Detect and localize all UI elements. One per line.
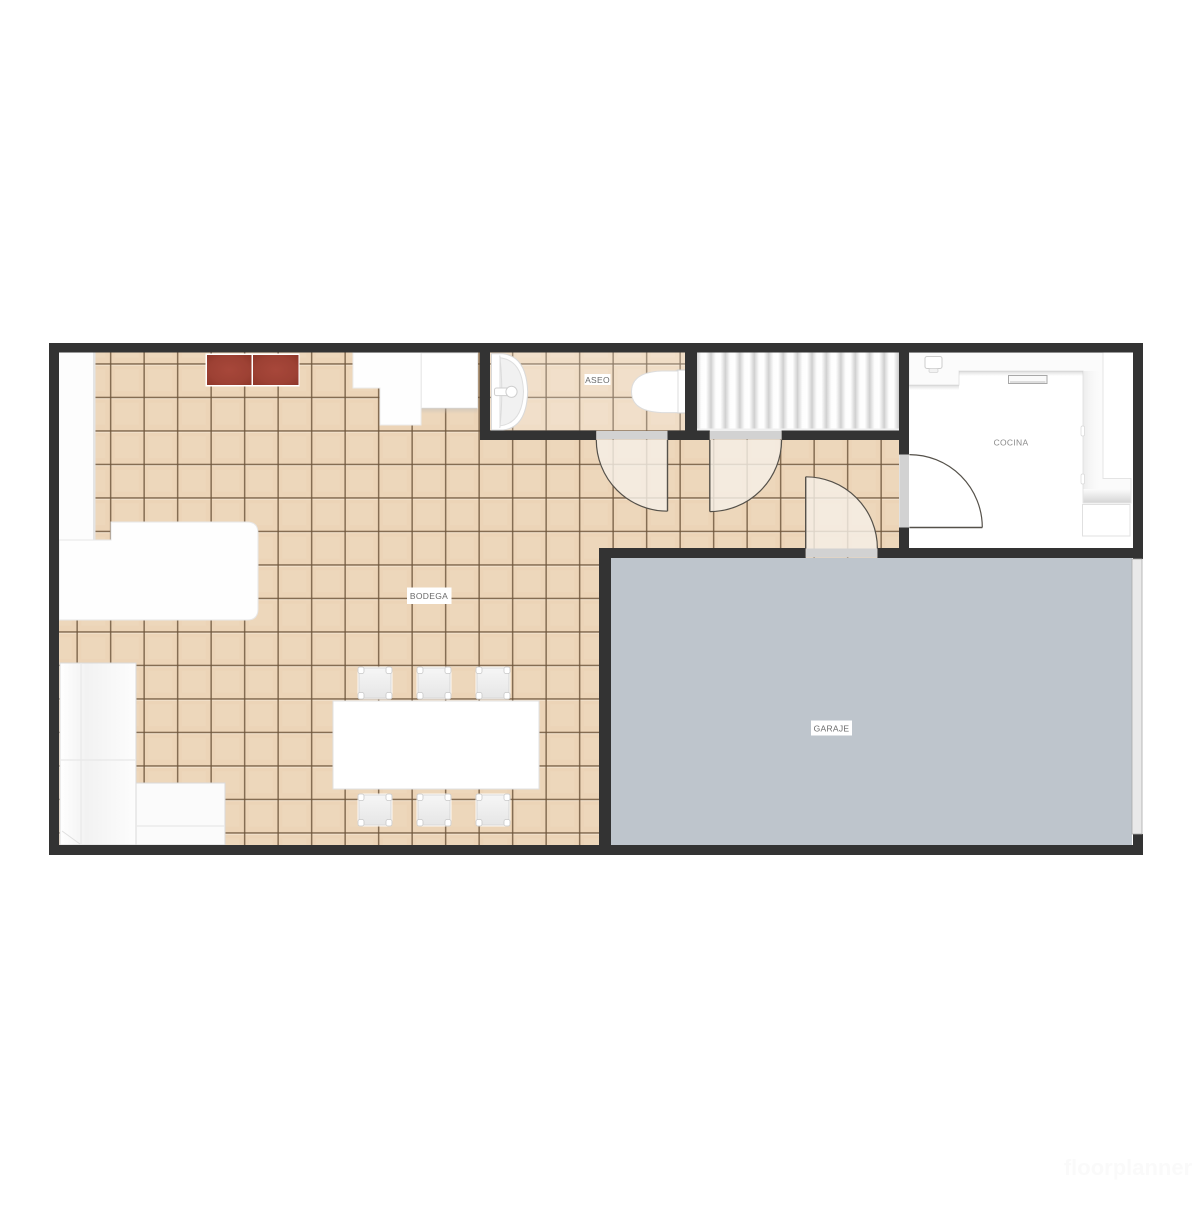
svg-text:BODEGA: BODEGA: [410, 591, 448, 601]
svg-text:floorplanner: floorplanner: [1064, 1155, 1193, 1180]
svg-text:ASEO: ASEO: [585, 375, 610, 385]
svg-text:GARAJE: GARAJE: [814, 724, 850, 734]
svg-text:COCINA: COCINA: [994, 438, 1029, 448]
